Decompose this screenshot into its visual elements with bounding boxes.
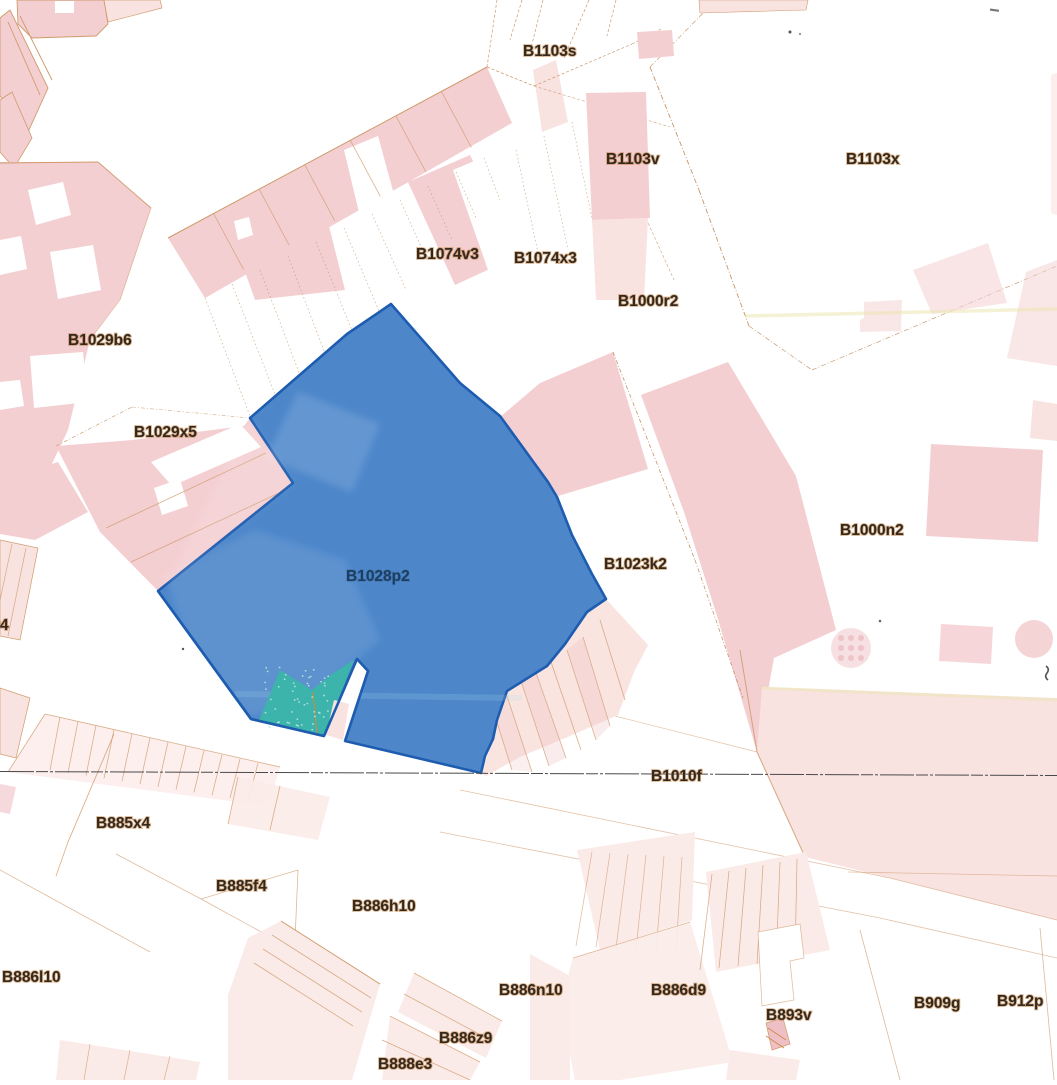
svg-text:B1000n2: B1000n2: [840, 522, 904, 539]
svg-text:B1028p2: B1028p2: [346, 568, 410, 585]
svg-text:B1029x5: B1029x5: [134, 424, 197, 441]
svg-text:B1074v3: B1074v3: [416, 246, 479, 263]
svg-text:B886l10: B886l10: [2, 969, 61, 986]
svg-text:B885f4: B885f4: [216, 878, 267, 895]
svg-text:B1000r2: B1000r2: [618, 293, 678, 310]
svg-text:B909g: B909g: [914, 995, 961, 1012]
svg-text:B1023k2: B1023k2: [604, 556, 667, 573]
svg-text:B912p: B912p: [997, 993, 1044, 1010]
svg-text:B1103x: B1103x: [846, 151, 900, 168]
svg-text:B886d9: B886d9: [651, 982, 707, 999]
svg-text:B885x4: B885x4: [96, 815, 151, 832]
svg-text:B1074x3: B1074x3: [514, 250, 577, 267]
svg-text:B1029b6: B1029b6: [68, 332, 132, 349]
svg-text:B1103s: B1103s: [523, 43, 576, 60]
svg-text:B886n10: B886n10: [499, 982, 563, 999]
svg-text:B893v: B893v: [766, 1007, 812, 1024]
svg-text:r4: r4: [0, 617, 9, 634]
svg-text:B1103v: B1103v: [606, 151, 660, 168]
svg-text:B886h10: B886h10: [352, 898, 416, 915]
svg-text:B1010f: B1010f: [651, 768, 703, 785]
svg-text:B888e3: B888e3: [378, 1056, 433, 1073]
svg-text:B886z9: B886z9: [439, 1030, 493, 1047]
